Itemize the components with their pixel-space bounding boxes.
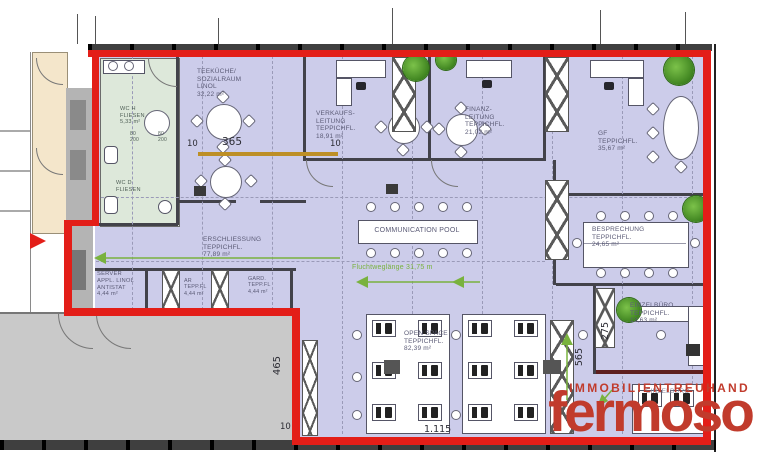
floor-plan-canvas: TEEKÜCHE/ SOZIALRAUM LINOL 32,22 m² VERK… (0, 0, 770, 456)
rental-outline-left-upper (92, 50, 99, 226)
logo-brand: fermoso (548, 388, 752, 436)
entrance-arrow-icon (30, 233, 46, 249)
fermoso-logo: IMMOBILIENTREUHAND fermoso (550, 381, 750, 453)
rental-outline-left (64, 222, 72, 316)
rental-outline-left-lower (292, 310, 300, 445)
rental-outline-mid (64, 308, 300, 316)
rental-outline-top (88, 50, 711, 57)
